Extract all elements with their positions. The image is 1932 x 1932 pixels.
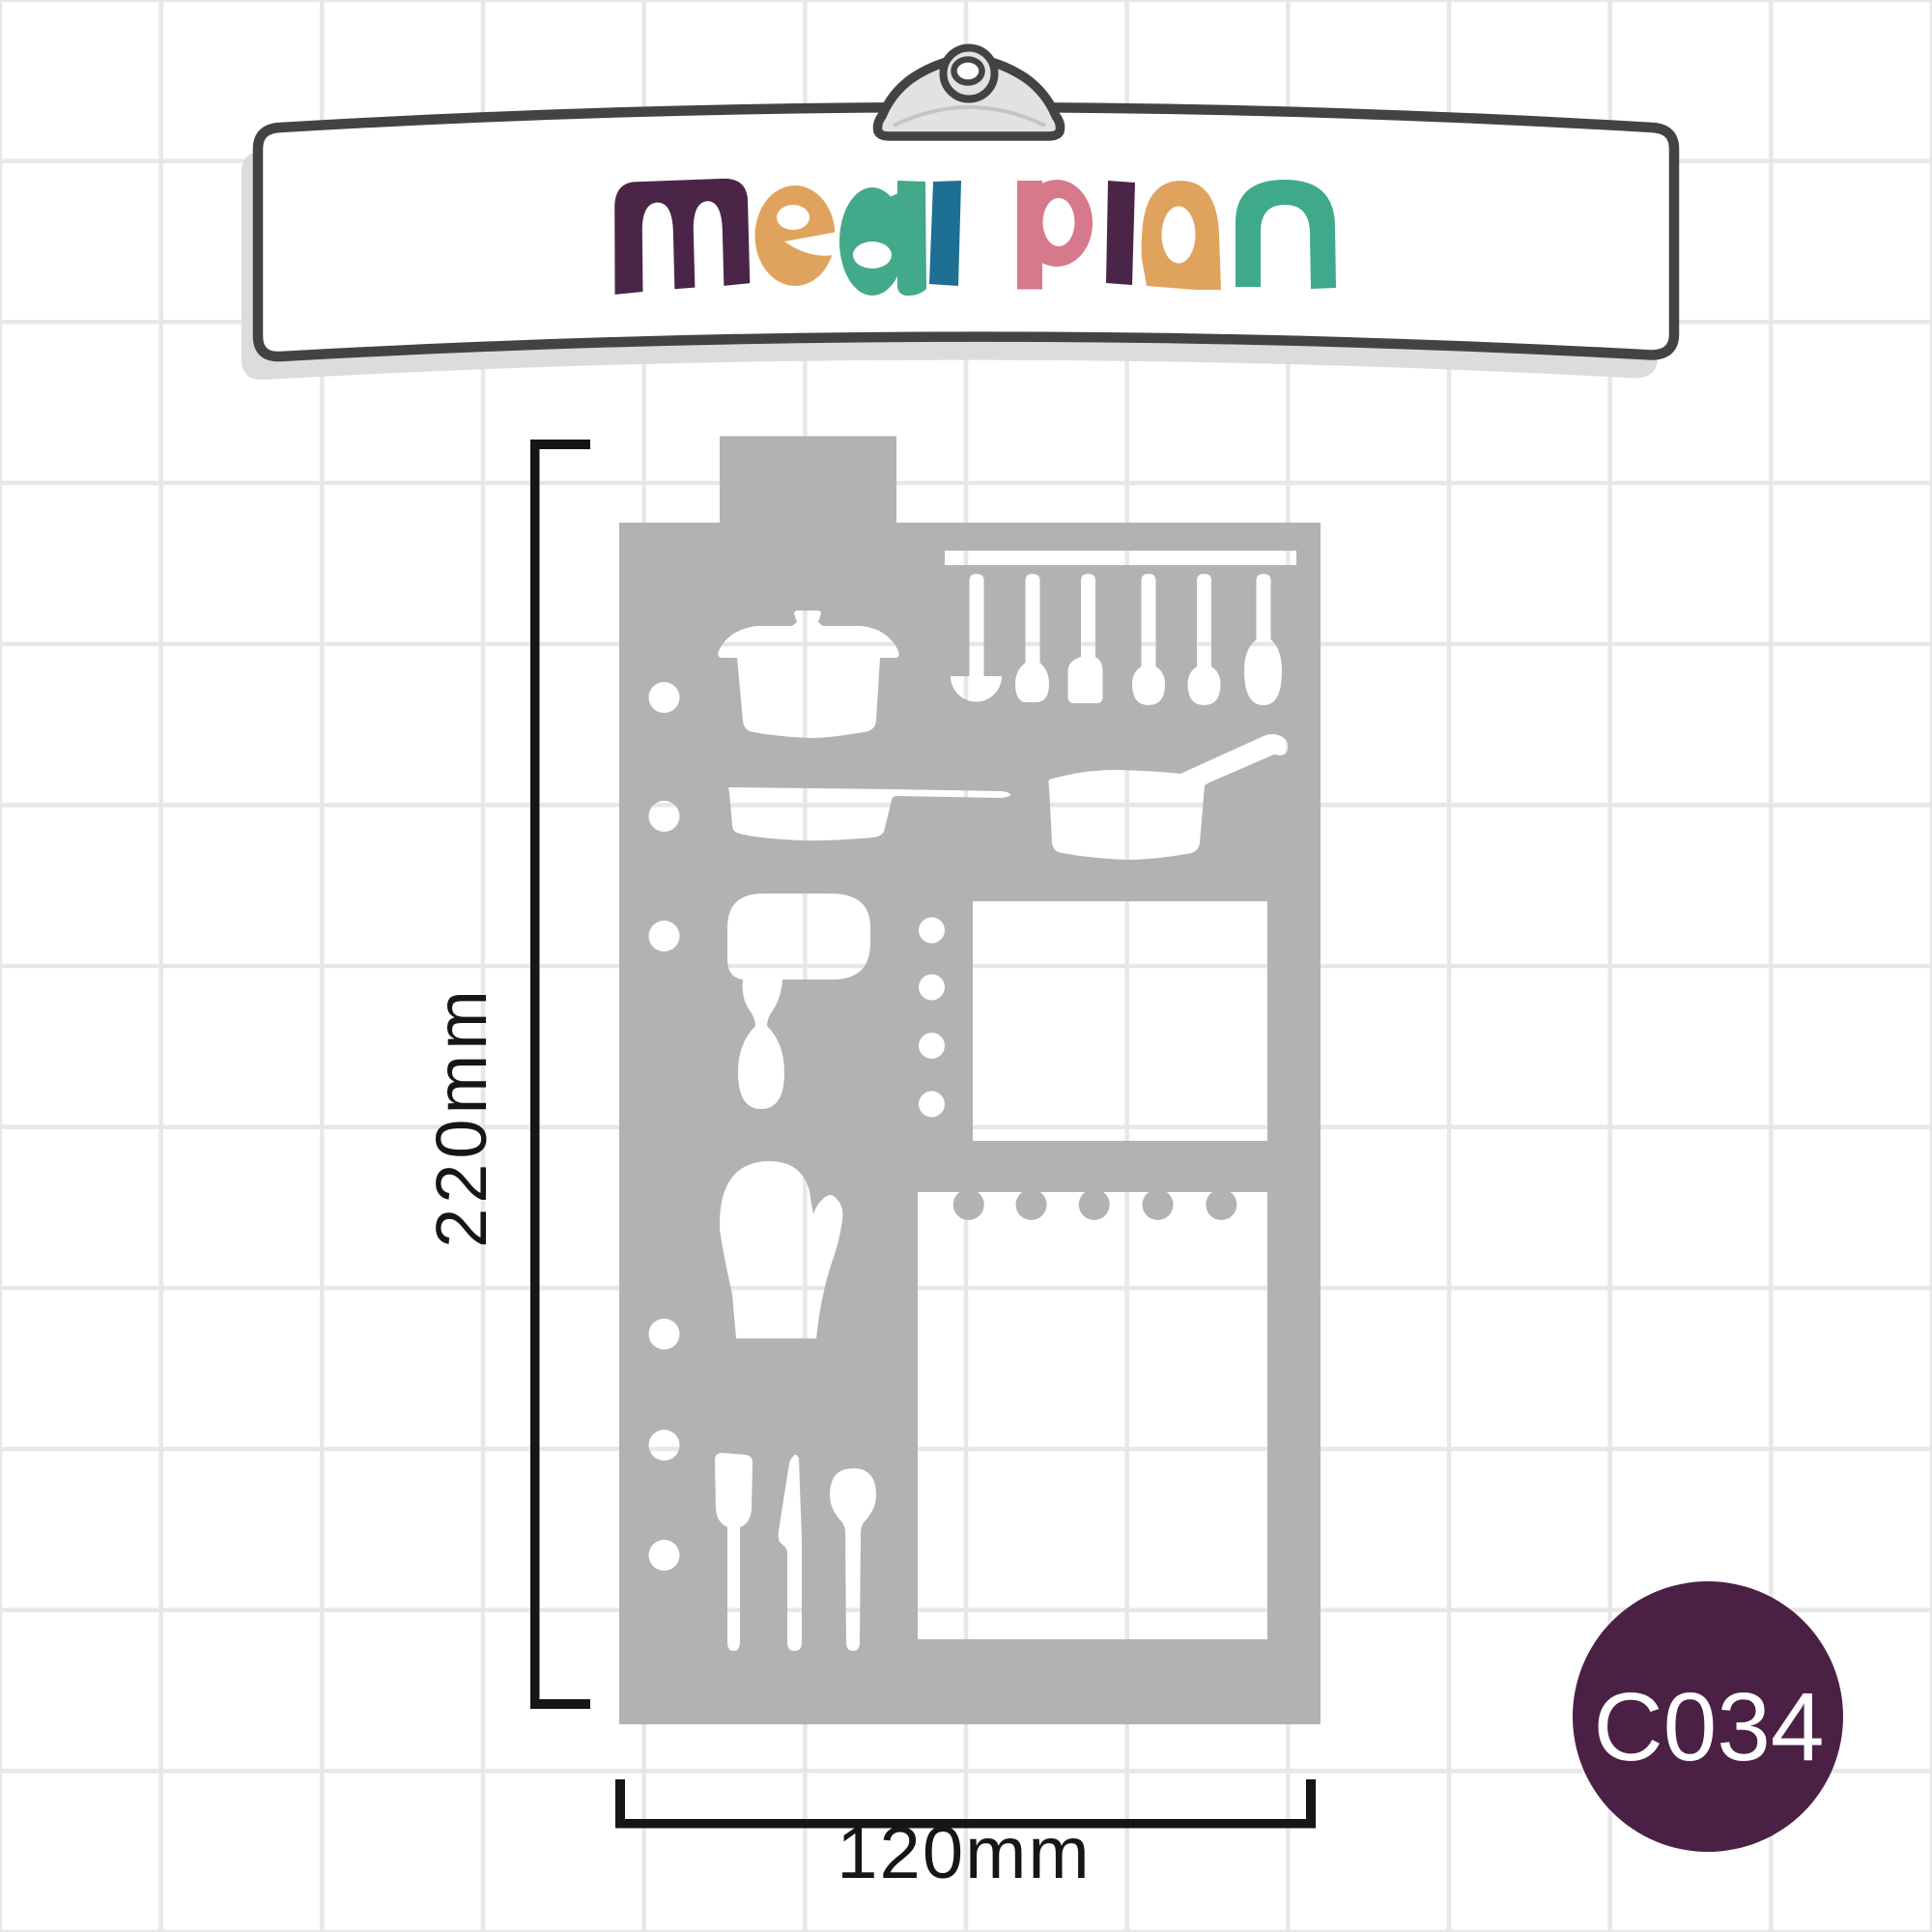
svg-text:120mm: 120mm [837, 1812, 1091, 1894]
svg-text:C034: C034 [1593, 1673, 1824, 1781]
svg-text:220mm: 220mm [421, 985, 501, 1248]
